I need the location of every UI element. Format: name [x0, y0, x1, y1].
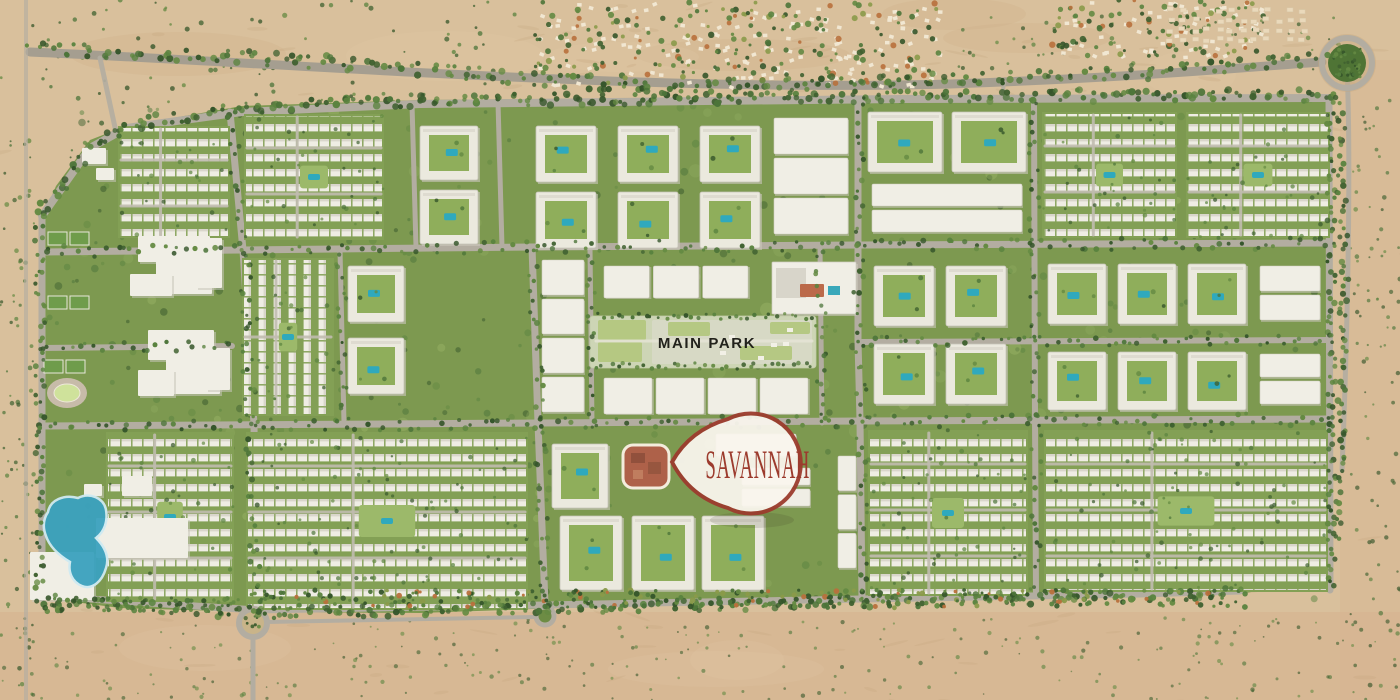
- map-art: [576, 24, 580, 28]
- map-art: [182, 83, 186, 87]
- map-art: [1305, 563, 1309, 567]
- map-art: [962, 547, 966, 551]
- map-art: [1076, 339, 1080, 343]
- map-art: [1327, 177, 1332, 182]
- map-art: [696, 316, 700, 320]
- map-art: [39, 521, 43, 525]
- map-art: [1070, 454, 1072, 456]
- map-art: [714, 100, 721, 107]
- map-art: [1062, 238, 1067, 243]
- map-art: [122, 476, 152, 496]
- map-art: [522, 76, 526, 80]
- map-art: [705, 313, 708, 316]
- map-art: [496, 610, 502, 616]
- map-art: [810, 79, 814, 83]
- map-art: [621, 195, 675, 198]
- map-art: [740, 244, 745, 249]
- map-art: [743, 92, 747, 96]
- map-art: [1223, 207, 1226, 210]
- map-art: [434, 636, 438, 640]
- map-art: [335, 419, 340, 424]
- map-art: [1283, 97, 1287, 101]
- map-art: [786, 37, 791, 41]
- map-art: [1216, 241, 1222, 247]
- map-art: [353, 622, 356, 625]
- map-art: [472, 653, 475, 656]
- map-art: [402, 408, 409, 415]
- map-art: [690, 640, 784, 680]
- map-art: [1275, 618, 1277, 620]
- map-art: [833, 80, 839, 86]
- map-art: [1290, 194, 1293, 197]
- map-art: [1172, 218, 1176, 222]
- map-art: [1338, 136, 1342, 140]
- map-art: [257, 117, 262, 122]
- map-art: [774, 118, 848, 154]
- map-art: [867, 415, 871, 419]
- map-art: [1142, 589, 1146, 593]
- map-art: [1277, 20, 1283, 24]
- map-art: [1033, 565, 1037, 569]
- map-art: [358, 170, 361, 173]
- map-art: [635, 365, 640, 370]
- map-art: [204, 424, 207, 427]
- map-art: [946, 428, 950, 432]
- map-art: [211, 680, 214, 683]
- map-art: [875, 588, 879, 592]
- map-art: [1028, 295, 1032, 299]
- map-art: [858, 491, 863, 496]
- map-art: [1034, 98, 1036, 592]
- map-art: [1269, 234, 1273, 238]
- map-art: [1147, 67, 1153, 73]
- map-art: [270, 165, 273, 168]
- map-art: [87, 246, 91, 250]
- map-art: [612, 663, 614, 665]
- map-art: [861, 71, 865, 75]
- map-art: [329, 3, 333, 7]
- map-art: [886, 600, 891, 605]
- map-art: [282, 612, 287, 617]
- map-art: [847, 55, 852, 59]
- map-art: [1332, 557, 1337, 562]
- map-art: [597, 31, 603, 37]
- map-art: [255, 503, 260, 508]
- map-art: [604, 378, 652, 414]
- map-art: [415, 591, 418, 594]
- map-art: [1396, 623, 1400, 627]
- map-art: [611, 697, 613, 699]
- map-art: [240, 50, 245, 55]
- map-art: [733, 14, 737, 18]
- map-art: [83, 598, 88, 603]
- map-art: [898, 89, 904, 95]
- map-art: [860, 203, 865, 208]
- map-art: [394, 664, 398, 668]
- map-art: [478, 31, 483, 36]
- map-art: [776, 362, 781, 367]
- map-art: [765, 48, 771, 54]
- map-art: [552, 91, 557, 96]
- map-art: [546, 657, 549, 660]
- map-art: [1164, 423, 1168, 427]
- map-art: [245, 367, 250, 372]
- map-art: [915, 307, 919, 311]
- map-art: [1252, 8, 1258, 12]
- map-art: [1215, 640, 1219, 644]
- map-art: [1343, 62, 1345, 64]
- map-art: [906, 536, 909, 539]
- map-art: [864, 387, 868, 391]
- map-art: [267, 566, 271, 570]
- map-art: [649, 165, 654, 170]
- map-art: [1200, 629, 1202, 631]
- map-art: [433, 594, 438, 599]
- courtyard-apartment-block: [536, 126, 598, 184]
- map-art: [1029, 587, 1032, 590]
- map-art: [852, 15, 858, 21]
- map-art: [680, 24, 685, 28]
- map-art: [943, 89, 949, 95]
- map-art: [158, 604, 163, 609]
- map-art: [1193, 422, 1197, 426]
- map-art: [193, 114, 199, 120]
- map-art: [552, 242, 556, 246]
- savannah-plot-highlight[interactable]: [623, 445, 669, 488]
- map-art: [354, 223, 357, 226]
- map-art: [1228, 374, 1231, 377]
- map-art: [865, 599, 870, 604]
- map-art: [236, 209, 240, 213]
- map-art: [545, 498, 549, 502]
- map-art: [632, 603, 638, 609]
- map-art: [342, 385, 345, 388]
- map-art: [1080, 655, 1084, 659]
- map-art: [583, 672, 586, 675]
- map-art: [539, 195, 593, 198]
- map-art: [1032, 498, 1036, 502]
- map-art: [42, 445, 46, 449]
- map-art: [1329, 551, 1334, 556]
- map-art: [1058, 600, 1062, 604]
- map-art: [1134, 341, 1139, 346]
- map-art: [874, 49, 877, 52]
- map-art: [555, 83, 560, 87]
- map-art: [1064, 43, 1070, 49]
- map-art: [1329, 508, 1333, 512]
- map-art: [877, 347, 931, 350]
- map-art: [1263, 36, 1269, 40]
- map-art: [53, 422, 57, 426]
- map-art: [1297, 242, 1300, 245]
- map-art: [99, 121, 104, 126]
- map-art: [104, 423, 108, 427]
- map-art: [863, 383, 867, 387]
- map-art: [1391, 479, 1395, 483]
- map-art: [423, 129, 475, 132]
- map-art: [1081, 590, 1085, 594]
- map-art: [35, 433, 39, 437]
- map-art: [541, 398, 545, 402]
- map-art: [913, 91, 918, 96]
- map-art: [1174, 472, 1177, 475]
- map-art: [627, 201, 669, 239]
- map-art: [86, 420, 90, 424]
- map-art: [1053, 29, 1057, 33]
- map-art: [897, 21, 900, 24]
- map-art: [816, 627, 819, 630]
- map-art: [643, 88, 650, 95]
- map-art: [1337, 153, 1343, 159]
- map-art: [783, 312, 786, 315]
- map-art: [189, 344, 194, 349]
- map-art: [897, 355, 901, 359]
- map-art: [180, 120, 184, 124]
- map-art: [860, 420, 864, 424]
- map-art: [196, 238, 222, 288]
- map-art: [854, 243, 859, 248]
- map-art: [188, 409, 196, 417]
- map-art: [899, 293, 911, 300]
- map-art: [1198, 88, 1206, 96]
- map-art: [247, 543, 252, 548]
- map-art: [745, 317, 749, 321]
- map-art: [150, 243, 155, 248]
- map-art: [541, 0, 546, 5]
- map-art: [1242, 661, 1246, 665]
- map-art: [294, 419, 298, 423]
- map-art: [130, 145, 133, 148]
- map-art: [998, 596, 1003, 601]
- map-art: [727, 250, 730, 253]
- map-art: [1089, 66, 1093, 70]
- map-art: [1392, 326, 1396, 330]
- map-art: [695, 84, 700, 89]
- map-art: [1167, 7, 1173, 11]
- map-art: [888, 241, 892, 245]
- map-art: [212, 143, 215, 146]
- map-art: [290, 568, 293, 571]
- map-art: [528, 289, 532, 293]
- map-art: [185, 667, 188, 670]
- map-art: [1147, 28, 1149, 30]
- map-art: [798, 49, 804, 55]
- map-art: [859, 365, 863, 369]
- map-art: [487, 555, 490, 558]
- map-art: [587, 37, 593, 43]
- map-art: [673, 420, 678, 425]
- map-art: [613, 61, 617, 65]
- map-art: [19, 304, 22, 307]
- map-art: [1231, 34, 1233, 36]
- map-art: [724, 364, 729, 369]
- map-art: [1209, 419, 1213, 423]
- map-art: [148, 572, 152, 576]
- map-art: [202, 399, 208, 405]
- map-art: [456, 483, 459, 486]
- map-art: [126, 512, 129, 515]
- map-art: [1027, 74, 1033, 80]
- map-art: [1203, 39, 1209, 43]
- map-art: [745, 592, 750, 597]
- map-art: [832, 604, 837, 609]
- map-art: [1126, 459, 1130, 463]
- map-art: [720, 250, 728, 258]
- map-art: [55, 192, 62, 199]
- map-art: [1355, 486, 1359, 490]
- map-art: [624, 421, 629, 426]
- map-art: [199, 695, 203, 699]
- map-art: [1143, 391, 1146, 394]
- map-art: [865, 98, 871, 104]
- map-art: [122, 101, 125, 104]
- map-art: [1208, 10, 1214, 16]
- map-art: [327, 609, 332, 614]
- map-art: [1346, 277, 1351, 282]
- map-art: [44, 606, 47, 609]
- map-art: [1297, 625, 1301, 629]
- map-art: [667, 532, 670, 535]
- map-art: [1225, 194, 1228, 197]
- map-art: [1161, 604, 1165, 608]
- map-art: [212, 598, 216, 602]
- map-art: [1194, 6, 1199, 10]
- map-art: [903, 422, 906, 425]
- map-art: [514, 524, 518, 528]
- map-art: [885, 91, 889, 95]
- map-art: [588, 99, 596, 107]
- map-art: [44, 345, 48, 349]
- map-art: [245, 436, 251, 442]
- map-art: [676, 95, 682, 101]
- map-art: [942, 605, 946, 609]
- map-art: [245, 314, 248, 317]
- map-art: [171, 421, 176, 426]
- map-art: [1331, 168, 1336, 173]
- map-art: [1030, 243, 1035, 248]
- map-art: [587, 412, 591, 416]
- map-art: [1103, 596, 1107, 600]
- map-art: [707, 634, 710, 637]
- map-art: [1180, 437, 1184, 441]
- map-art: [188, 425, 191, 428]
- map-art: [899, 334, 902, 337]
- map-art: [251, 549, 256, 554]
- map-art: [13, 301, 15, 303]
- map-art: [230, 485, 234, 489]
- map-art: [1391, 401, 1395, 405]
- map-art: [1219, 601, 1223, 605]
- map-art: [137, 693, 139, 695]
- map-art: [446, 149, 458, 156]
- map-art: [933, 596, 937, 600]
- map-art: [1376, 504, 1379, 507]
- map-art: [1097, 25, 1102, 30]
- map-art: [1162, 236, 1168, 242]
- map-art: [856, 452, 862, 458]
- map-art: [1075, 88, 1080, 93]
- map-art: [825, 605, 830, 610]
- map-art: [66, 360, 85, 373]
- map-art: [663, 248, 668, 253]
- map-art: [282, 13, 287, 18]
- map-art: [981, 592, 984, 595]
- map-art: [520, 680, 524, 684]
- map-art: [1218, 20, 1224, 24]
- map-art: [1206, 330, 1211, 335]
- map-art: [507, 604, 512, 609]
- map-art: [1196, 641, 1200, 645]
- map-art: [636, 608, 642, 614]
- map-art: [1222, 6, 1227, 10]
- map-art: [1119, 645, 1123, 649]
- map-art: [558, 641, 561, 644]
- map-art: [939, 461, 944, 466]
- map-art: [85, 142, 90, 147]
- map-art: [1176, 489, 1179, 492]
- map-art: [825, 83, 831, 89]
- map-art: [972, 78, 977, 83]
- map-art: [512, 424, 515, 427]
- map-art: [1339, 167, 1344, 172]
- map-art: [145, 200, 148, 203]
- map-art: [883, 646, 885, 648]
- map-art: [1341, 264, 1346, 269]
- map-art: [341, 596, 346, 601]
- map-art: [1206, 337, 1210, 341]
- map-art: [820, 335, 824, 339]
- map-art: [1311, 595, 1318, 602]
- map-art: [228, 142, 232, 146]
- map-art: [315, 358, 320, 363]
- map-art: [1297, 337, 1301, 341]
- map-art: [1337, 437, 1344, 444]
- map-art: [1086, 641, 1090, 645]
- map-art: [526, 103, 530, 107]
- map-art: [1351, 623, 1354, 626]
- apartment-slabs-block: [604, 266, 750, 299]
- map-art: [785, 2, 791, 8]
- map-art: [1260, 381, 1320, 404]
- map-art: [775, 314, 779, 318]
- map-art: [951, 72, 956, 77]
- map-art: [590, 306, 594, 310]
- map-art: [1019, 92, 1024, 97]
- map-art: [335, 264, 340, 269]
- map-art: [859, 178, 865, 184]
- map-art: [591, 394, 595, 398]
- map-art: [708, 600, 714, 606]
- map-art: [16, 627, 18, 629]
- map-art: [1180, 8, 1186, 12]
- map-art: [659, 73, 664, 77]
- map-art: [984, 651, 988, 655]
- courtyard-apartment-block: [420, 126, 480, 182]
- map-art: [39, 564, 43, 568]
- map-art: [1278, 421, 1282, 425]
- map-art: [980, 71, 985, 76]
- map-art: [1147, 431, 1151, 435]
- map-art: [104, 245, 109, 250]
- townhome-block: [1044, 430, 1328, 592]
- map-art: [409, 92, 414, 97]
- map-art: [226, 49, 230, 53]
- map-art: [763, 34, 768, 38]
- map-art: [792, 362, 797, 367]
- map-art: [1288, 236, 1293, 241]
- map-art: [572, 65, 576, 69]
- map-art: [1191, 12, 1196, 17]
